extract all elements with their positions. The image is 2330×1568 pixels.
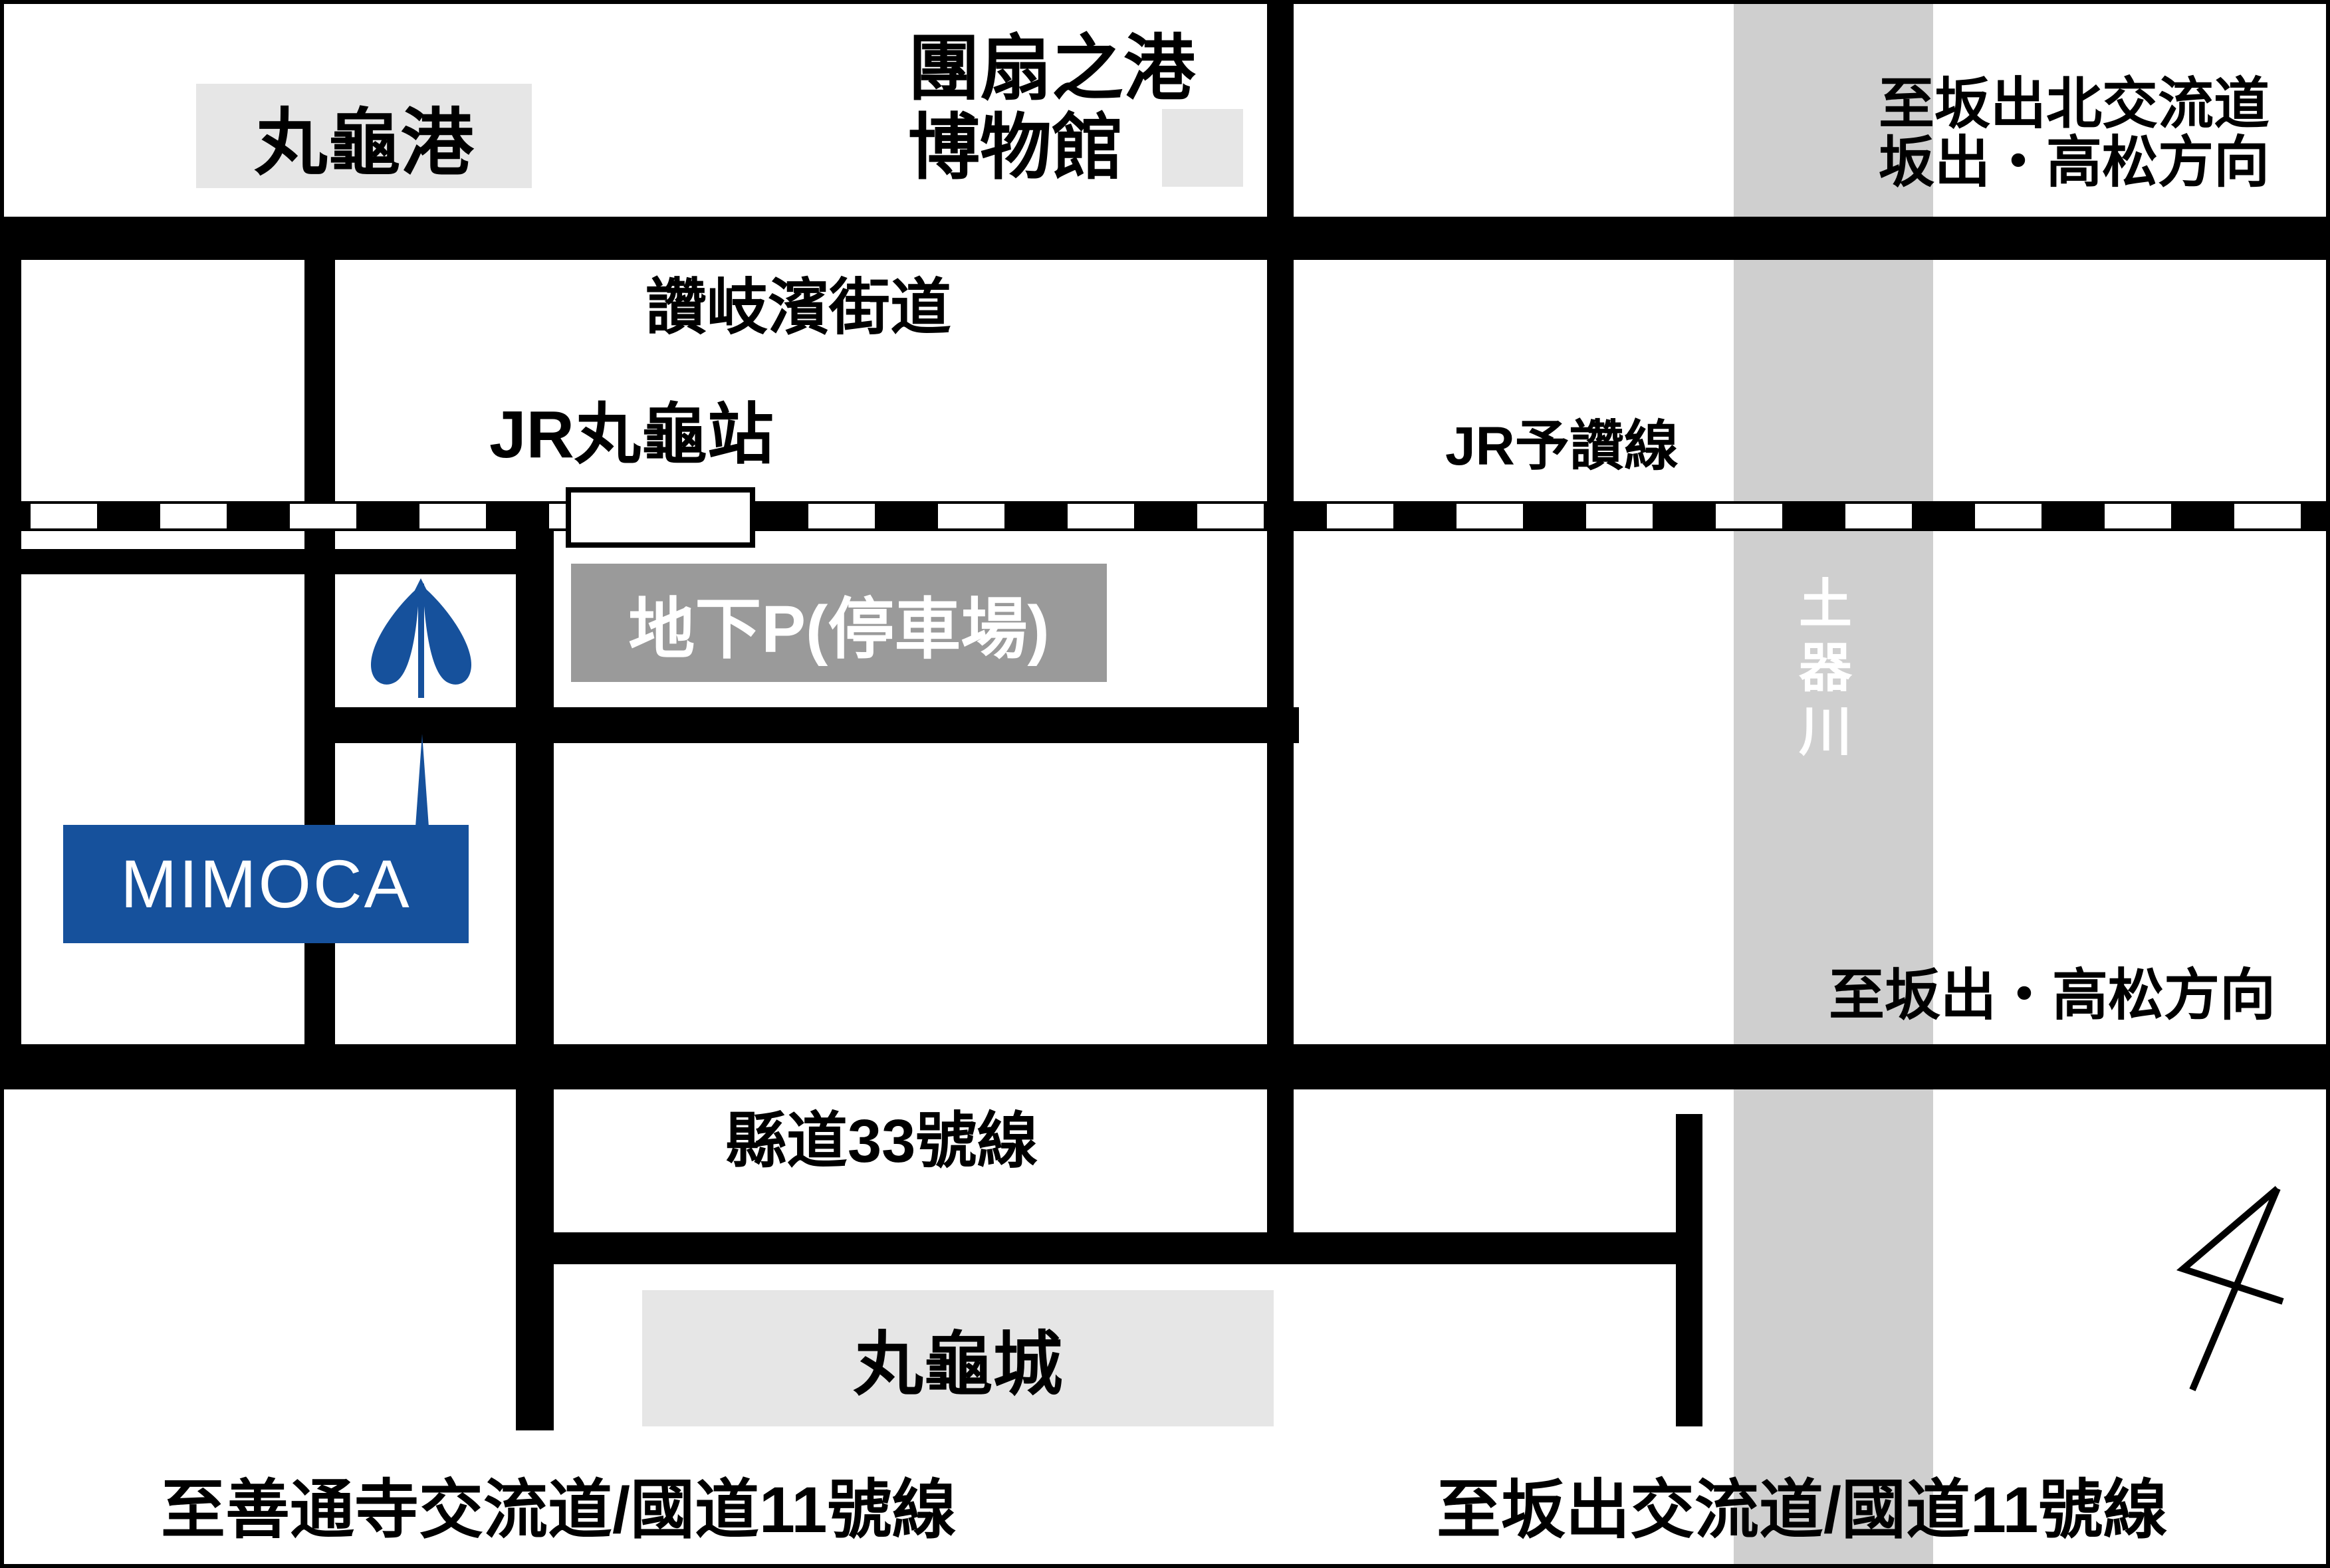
to-sakaide-label: 至坂出交流道/國道11號線 (1437, 1476, 2168, 1545)
road-route33-horizontal (4, 1044, 2330, 1089)
road-parking-horizontal (304, 707, 1299, 743)
to-sakaide-kita-label: 至坂出北交流道 坂出・高松方向 (1879, 74, 2270, 191)
to-sakaide-takamatsu-label: 至坂出・高松方向 (1829, 965, 2275, 1026)
underground-parking-box: 地下P(停車場) (571, 564, 1107, 682)
north-arrow-icon (2174, 1177, 2294, 1397)
museum-label: 團扇之港 博物館 (908, 29, 1195, 187)
to-sakaide-kita-line2: 坂出・高松方向 (1879, 133, 2270, 191)
access-map: 丸龜港 丸龜城 地下P(停車場) MIMOCA 團扇之港 博物館 至坂出北交流道… (0, 0, 2330, 1568)
railway-dashes (4, 504, 2330, 528)
marugame-castle-box: 丸龜城 (642, 1290, 1274, 1426)
marugame-castle-label: 丸龜城 (853, 1308, 1062, 1409)
to-zentsuji-label: 至善通寺交流道/國道11號線 (161, 1476, 957, 1545)
museum-label-line2: 博物館 (908, 108, 1195, 187)
road-lower-horizontal (516, 1232, 1702, 1264)
jr-marugame-station-label: JR丸龜站 (489, 399, 774, 471)
underground-parking-label: 地下P(停車場) (628, 575, 1049, 671)
road-below-railway (4, 549, 554, 574)
mimoca-box: MIMOCA (63, 825, 469, 943)
road-top-horizontal (4, 217, 2330, 260)
jr-yosan-line-label: JR予讚線 (1445, 417, 1679, 477)
railway-line (4, 501, 2330, 531)
mimoca-label: MIMOCA (120, 845, 411, 923)
route33-label: 縣道33號線 (725, 1109, 1038, 1175)
station-box (566, 487, 755, 548)
road-right-vertical (1676, 1114, 1702, 1426)
to-sakaide-kita-line1: 至坂出北交流道 (1879, 74, 2270, 133)
sanuki-hama-kaido-label: 讚岐濱街道 (645, 275, 951, 341)
doki-river-label: 土器川 (1801, 576, 1859, 767)
road-central-vertical (1267, 4, 1294, 1262)
marugame-port-label: 丸龜港 (255, 83, 474, 189)
marugame-port-box: 丸龜港 (196, 84, 532, 188)
mimoca-stem-spike (411, 734, 433, 827)
road-left-edge-vertical (4, 217, 21, 1089)
mimoca-tree-icon (355, 577, 488, 700)
road-vertical-2 (516, 503, 554, 1430)
museum-label-line1: 團扇之港 (908, 29, 1195, 108)
road-vertical-1 (304, 260, 335, 1089)
